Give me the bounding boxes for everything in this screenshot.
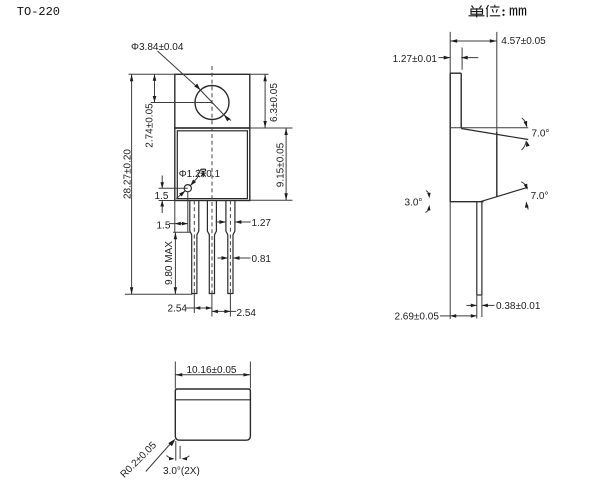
svg-text:2.69±0.05: 2.69±0.05	[394, 312, 439, 323]
svg-text:7.0°: 7.0°	[531, 191, 549, 202]
svg-text:1.27: 1.27	[252, 218, 272, 229]
svg-text:6.3±0.05: 6.3±0.05	[269, 83, 280, 122]
svg-text:3.0°: 3.0°	[405, 198, 423, 209]
svg-text:mm: mm	[509, 4, 527, 21]
svg-text:28.27±0.20: 28.27±0.20	[122, 149, 133, 199]
svg-text:1.5: 1.5	[155, 191, 169, 202]
svg-text:Φ1.2: Φ1.2	[179, 169, 201, 180]
svg-text:4.57±0.05: 4.57±0.05	[501, 36, 546, 47]
svg-text:1.5: 1.5	[157, 221, 171, 232]
svg-text:TO-220: TO-220	[17, 5, 60, 19]
svg-text:9.15±0.05: 9.15±0.05	[276, 142, 287, 187]
svg-text:0.81: 0.81	[252, 254, 272, 265]
svg-text:2.74±0.05: 2.74±0.05	[144, 103, 155, 148]
svg-text:7.0°: 7.0°	[532, 129, 550, 140]
svg-text:9.80 MAX: 9.80 MAX	[164, 241, 175, 285]
svg-text:0.1: 0.1	[206, 169, 220, 180]
svg-text:2.54: 2.54	[237, 308, 257, 319]
svg-text:1.27±0.01: 1.27±0.01	[393, 54, 438, 65]
svg-text:2.54: 2.54	[168, 304, 188, 315]
svg-text:10.16±0.05: 10.16±0.05	[187, 365, 237, 376]
svg-text:0.38±0.01: 0.38±0.01	[496, 301, 541, 312]
svg-text:3.0°(2X): 3.0°(2X)	[163, 466, 200, 477]
